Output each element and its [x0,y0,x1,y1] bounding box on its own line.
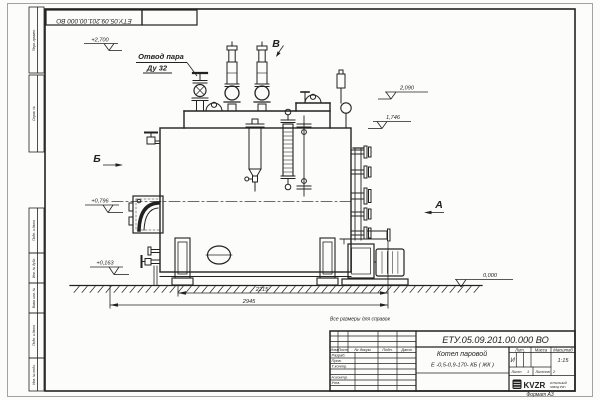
elevation-mark-burner: +0,796 [85,199,123,213]
format-note: Формат А3 [526,392,554,398]
row-tkontr: Т.контр. [332,364,348,369]
company-abbr: KVZR [524,381,546,390]
row-prov: Пров. [332,358,342,363]
row-razrab: Разраб. [332,353,346,358]
company-logo: KVZR КОТЕЛЬНЫЙ ЗАВОД РЭП [513,380,567,391]
front-corner-valve [145,133,160,145]
svg-text:+0,163: +0,163 [96,261,114,267]
water-gauge-column [245,119,264,191]
ground-hatch [74,286,479,292]
ground-line [70,286,482,293]
margin-label-sprav-no: Справ. № [32,106,36,121]
product-name-line1: Котел паровой [437,350,487,358]
sheets-value: 2 [552,369,556,374]
margin-label-vzam-inv: Взам. инв. № [32,287,36,308]
elevation-mark-drain: +0,163 [90,261,129,275]
svg-text:1,746: 1,746 [386,115,401,121]
sheet-value: 1 [527,369,529,374]
svg-text:+2,700: +2,700 [91,38,109,44]
scale-value: 1:15 [558,358,570,364]
safety-valve-1 [224,42,240,111]
col-podp: Подп. [382,347,392,352]
lit-header: Лит. [514,348,525,353]
front-lower-piping [142,247,161,285]
margin-label-inv-dubl: Инв. № дубл. [32,258,36,278]
elevation-mark-shell: 1,746 [368,115,411,129]
manhole [206,246,232,264]
svg-text:Б: Б [93,153,101,165]
dim-overall-text: 2945 [242,299,256,305]
steam-outlet-callout: Отвод пара Ду 32 [136,52,197,76]
steam-outlet-valve [192,73,208,111]
svg-text:А: А [434,199,443,211]
product-name-line2: Е -0,5-0,9-170- КБ ( ЖК ) [431,363,494,369]
elevation-mark-drum: 2,090 [378,86,428,100]
sight-glass-rungs [284,128,292,172]
margin-label-podp-data-2: Подп. и дата [32,325,36,346]
svg-text:2,090: 2,090 [399,86,415,92]
view-marker-right: А [424,199,444,214]
svg-text:Ду 32: Ду 32 [146,64,168,73]
svg-text:0,000: 0,000 [483,273,498,279]
top-stamp-text: ЕТУ.05.09.201.00.000 ВО [56,17,131,24]
svg-text:В: В [272,38,280,50]
margin-label-perv-primen: Перв. примен. [32,29,36,51]
row-utv: Утв. [332,380,341,385]
margin-label-podp-data-1: Подп. и дата [32,220,36,241]
drum-top-fittings [301,70,351,128]
scale-header: Масштаб [553,348,573,353]
view-marker-top: В [272,38,283,57]
rear-flanged-stubs [351,146,371,240]
col-doc: № докум. [354,347,371,352]
elevation-mark-top: +2,700 [84,38,122,51]
sheets-label: Листов [535,369,550,374]
support-skid-left [172,238,193,285]
sight-glass-indicator [281,109,311,196]
lit-value: И [511,358,516,364]
margin-label-inv-podl: Инв. № подл. [32,364,36,385]
col-izm: Изм [330,347,338,352]
company-line1: КОТЕЛЬНЫЙ [550,381,567,385]
mass-header: Масса [535,348,548,353]
boiler-view [70,42,482,293]
fan-motor-ribs [382,252,398,274]
sheet-label: Лист [511,369,523,374]
boiler-drawing-svg: Перв. примен. Справ. № Подп. и дата Инв.… [0,0,600,400]
row-nkontr: Н.контр. [332,375,348,380]
drawing-sheet: Перв. примен. Справ. № Подп. и дата Инв.… [0,0,600,400]
dimension-annotations: 2215 2945 +2,700 2,090 1,746 [84,38,513,323]
dim-body-text: 2215 [255,287,269,293]
col-list: Лист [337,347,349,352]
support-skid-right [317,238,338,285]
margin-column-boxes: Перв. примен. Справ. № Подп. и дата Инв.… [29,7,44,391]
view-marker-left: Б [93,153,123,167]
svg-text:Отвод пара: Отвод пара [138,52,184,61]
top-designation-stamp: ЕТУ.05.09.201.00.000 ВО [46,10,197,25]
safety-valve-2 [254,42,270,111]
company-line2: ЗАВОД РЭП [550,385,565,389]
col-data: Дата [400,347,412,352]
reference-note: Все размеры для справок [330,317,391,323]
svg-text:+0,796: +0,796 [91,199,109,205]
title-designation: ЕТУ.05.09.201.00.000 ВО [442,335,549,345]
title-block: ЕТУ.05.09.201.00.000 ВО Изм Лист № докум… [330,331,575,398]
